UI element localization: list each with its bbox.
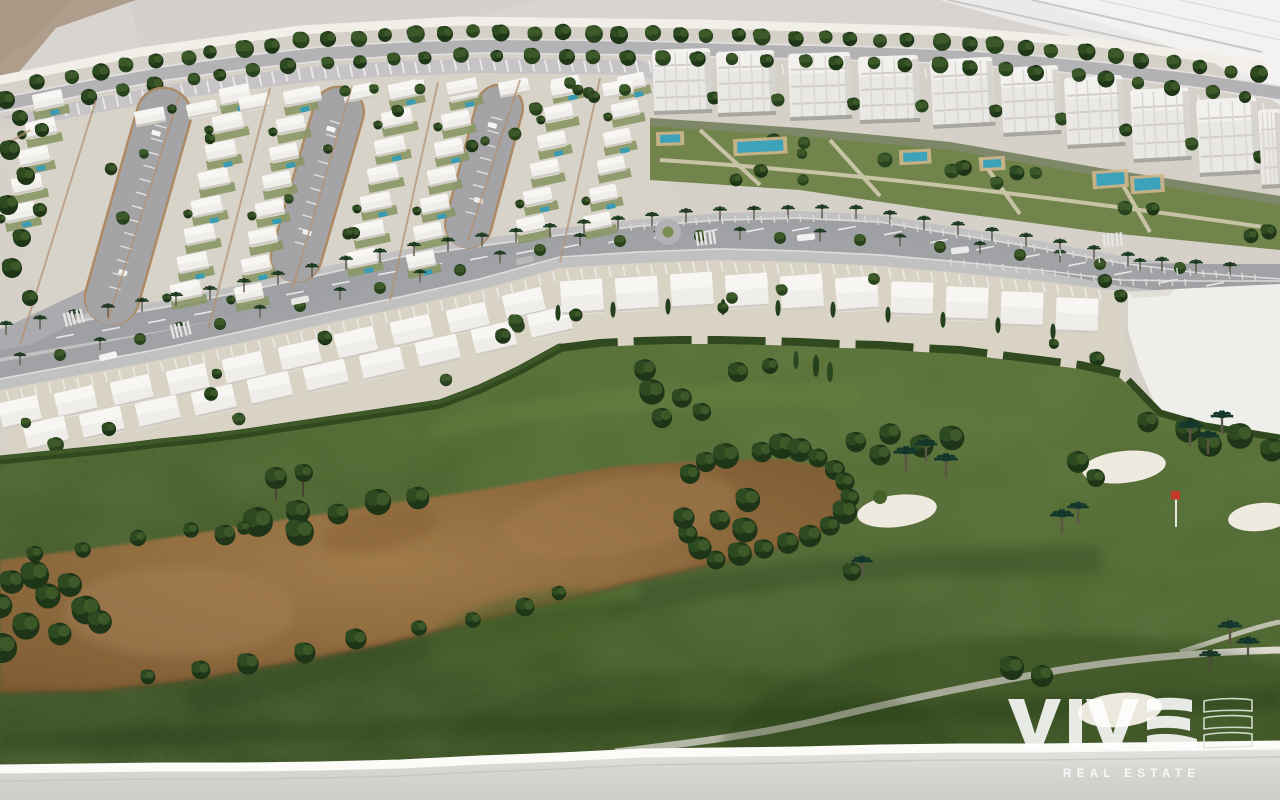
- svg-text:REAL ESTATE: REAL ESTATE: [1063, 768, 1200, 780]
